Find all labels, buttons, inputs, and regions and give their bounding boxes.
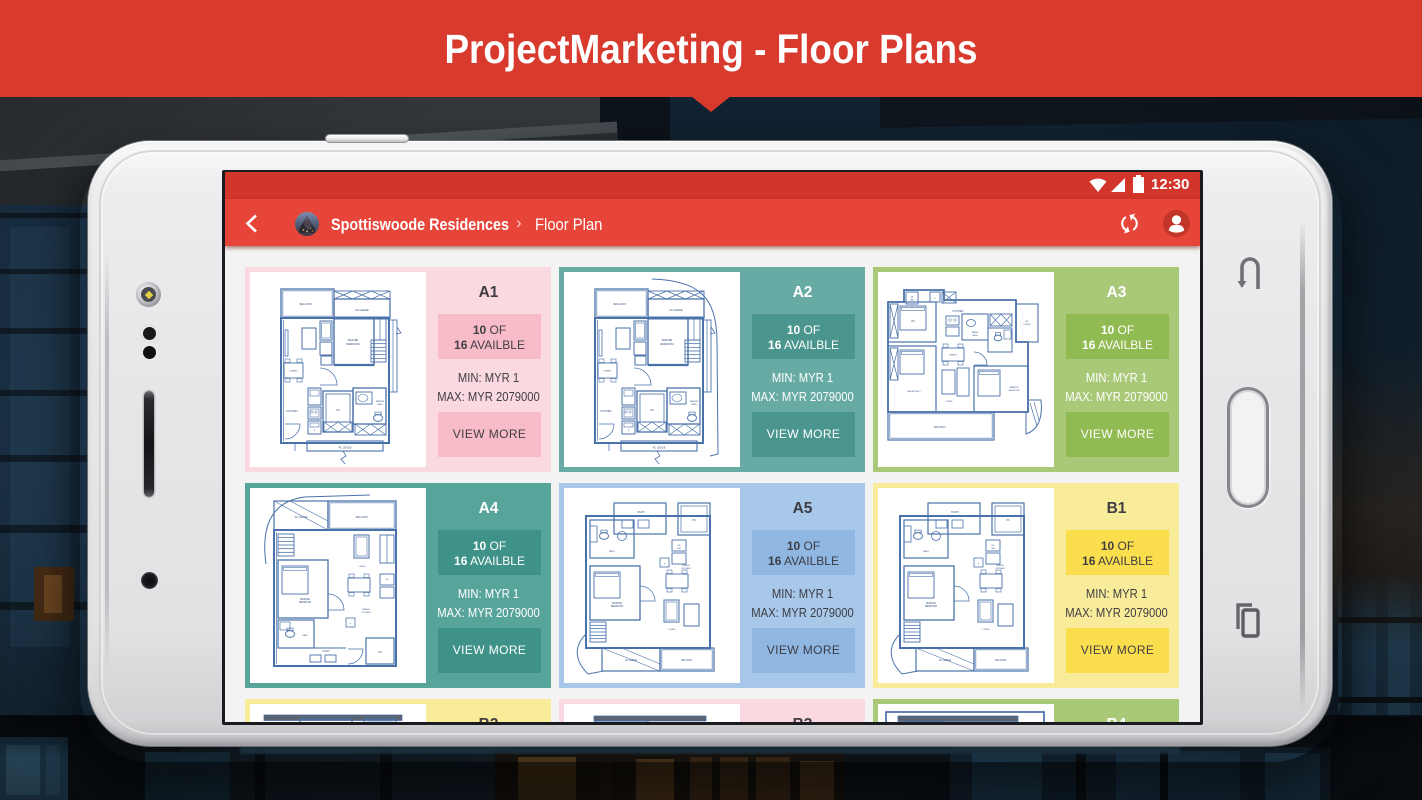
svg-text:HS: HS [1006,519,1010,522]
svg-text:WM: WM [678,548,682,550]
svg-text:DW: DW [992,545,995,547]
svg-text:WATER: WATER [972,331,979,334]
svg-text:DB: DB [911,297,914,299]
svg-text:BEDROOM: BEDROOM [611,606,623,608]
svg-text:LEDGE: LEDGE [1024,324,1031,326]
svg-text:BEDROOM 1: BEDROOM 1 [907,391,921,393]
svg-text:STUDY: STUDY [637,512,645,514]
svg-text:DINING/: DINING/ [996,565,1004,567]
svg-text:MASTER: MASTER [376,400,385,403]
svg-text:MASTER: MASTER [926,602,936,605]
svg-text:HS: HS [692,519,696,522]
svg-text:STUDY: STUDY [951,512,959,514]
svg-text:BALCONY: BALCONY [356,515,369,519]
svg-text:LIVING: LIVING [359,566,366,568]
svg-text:HS: HS [378,651,382,654]
svg-text:DW: DW [386,579,389,581]
svg-text:AC LEDGE: AC LEDGE [669,308,683,312]
svg-text:F: F [934,298,936,300]
svg-text:WM: WM [992,548,996,550]
svg-text:DINING/: DINING/ [362,609,370,611]
svg-text:F: F [628,430,630,432]
svg-text:DINING: DINING [290,371,298,373]
svg-text:MASTER: MASTER [690,400,699,403]
svg-text:LIVING: LIVING [983,629,990,631]
svg-text:MASTER: MASTER [1010,386,1019,389]
svg-text:BATH: BATH [923,550,929,553]
svg-text:STUDY: STUDY [322,651,330,653]
svg-text:DINING: DINING [604,371,612,373]
svg-text:F: F [314,430,316,432]
svg-text:DINING: DINING [949,355,957,357]
svg-text:BATH: BATH [302,634,308,637]
svg-text:BATH: BATH [609,550,615,553]
svg-text:DW: DW [678,545,681,547]
svg-text:MASTER: MASTER [348,339,359,342]
svg-text:BALCONY: BALCONY [300,302,313,306]
svg-text:F: F [664,564,666,566]
svg-text:HS: HS [336,409,340,412]
svg-text:LIVING: LIVING [669,629,676,631]
svg-text:KITCHEN: KITCHEN [601,410,612,413]
svg-text:MASTER: MASTER [662,339,673,342]
svg-text:RC LEDGE: RC LEDGE [653,447,666,450]
svg-text:BEDROOM: BEDROOM [299,602,311,604]
svg-text:KITCHEN: KITCHEN [287,410,298,413]
svg-text:BALCONY: BALCONY [995,659,1007,662]
svg-text:RC LEDGE: RC LEDGE [339,447,352,450]
svg-text:AC: AC [1026,320,1029,323]
svg-text:HS: HS [650,409,654,412]
svg-text:F: F [350,623,352,625]
svg-text:BEDROOM: BEDROOM [347,343,360,346]
svg-text:BEDROOM: BEDROOM [1009,390,1020,392]
svg-text:HS: HS [911,320,915,323]
svg-text:WM: WM [910,300,914,302]
svg-text:DINING/: DINING/ [682,565,690,567]
svg-text:AC LEDGE: AC LEDGE [355,308,369,312]
svg-text:BATH: BATH [973,334,979,337]
svg-text:KITCHEN: KITCHEN [361,612,371,614]
svg-text:LIVING: LIVING [946,401,953,403]
svg-text:BALCONY: BALCONY [614,302,627,306]
svg-text:MASTER: MASTER [300,598,310,601]
svg-text:BATH: BATH [691,403,697,406]
svg-text:BALCONY: BALCONY [934,426,946,429]
svg-text:MASTER: MASTER [612,602,622,605]
svg-text:BATH: BATH [377,403,383,406]
svg-text:F: F [978,564,980,566]
svg-text:BALCONY: BALCONY [681,659,693,662]
svg-text:AC LEDGE: AC LEDGE [295,516,308,519]
svg-text:BEDROOM: BEDROOM [925,606,937,608]
svg-text:KITCHEN: KITCHEN [953,310,964,313]
svg-text:BEDROOM: BEDROOM [661,343,674,346]
